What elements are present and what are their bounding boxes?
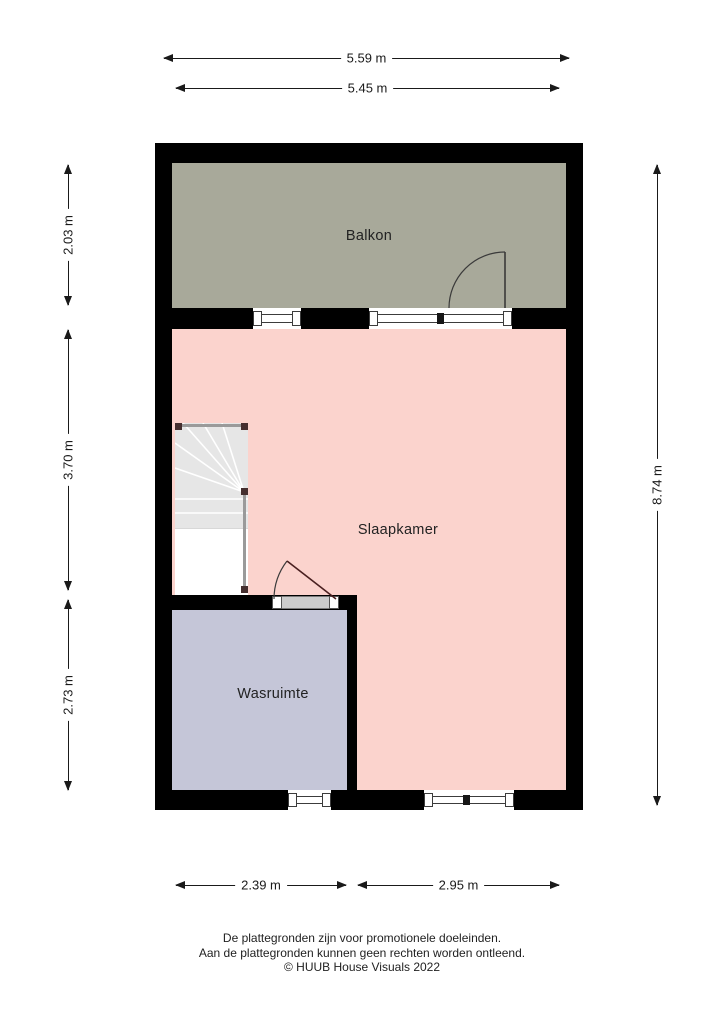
wall-wasruimte-right [347, 595, 357, 790]
dimension-label: 2.73 m [61, 669, 76, 721]
wasruimte-door-arc [266, 553, 342, 605]
footer-disclaimer: De plattegronden zijn voor promotionele … [0, 931, 724, 975]
dimension-label: 5.59 m [341, 51, 393, 66]
footer-line-2: Aan de plattegronden kunnen geen rechten… [0, 946, 724, 961]
dimension-bottom-left: 2.39 m [175, 877, 347, 893]
dimension-left-bottom: 2.73 m [60, 599, 76, 791]
dimension-right-total: 8.74 m [649, 164, 665, 806]
window-glass [259, 314, 295, 323]
dimension-label: 2.03 m [61, 209, 76, 261]
room-label-slaapkamer: Slaapkamer [358, 522, 438, 538]
window-mullion [463, 795, 470, 805]
floor-plan-canvas: 5.59 m 5.45 m 2.03 m 3.70 m 2.73 m 8.74 … [0, 0, 724, 1024]
window-mullion [437, 313, 444, 324]
dimension-label: 2.95 m [433, 878, 485, 893]
balkon-door-arc [440, 244, 515, 310]
dimension-left-middle: 3.70 m [60, 329, 76, 591]
wall-left [155, 143, 172, 810]
wall-top [155, 143, 583, 163]
dimension-label: 8.74 m [650, 459, 665, 511]
window-symbol [424, 790, 514, 810]
wall-bottom [155, 790, 583, 810]
stairs-symbol [175, 423, 248, 595]
dimension-top-inner: 5.45 m [175, 80, 560, 96]
dimension-top-outer: 5.59 m [163, 50, 570, 66]
dimension-left-balkon: 2.03 m [60, 164, 76, 306]
dimension-label: 3.70 m [61, 434, 76, 486]
room-label-wasruimte: Wasruimte [237, 686, 308, 702]
window-symbol [369, 308, 512, 329]
room-label-balkon: Balkon [346, 228, 392, 244]
window-glass [294, 796, 325, 804]
dimension-label: 2.39 m [235, 878, 287, 893]
window-symbol [253, 308, 301, 329]
footer-line-3: © HUUB House Visuals 2022 [0, 960, 724, 975]
window-symbol [288, 790, 331, 810]
dimension-label: 5.45 m [342, 81, 394, 96]
dimension-bottom-right: 2.95 m [357, 877, 560, 893]
footer-line-1: De plattegronden zijn voor promotionele … [0, 931, 724, 946]
wall-right [566, 143, 583, 810]
